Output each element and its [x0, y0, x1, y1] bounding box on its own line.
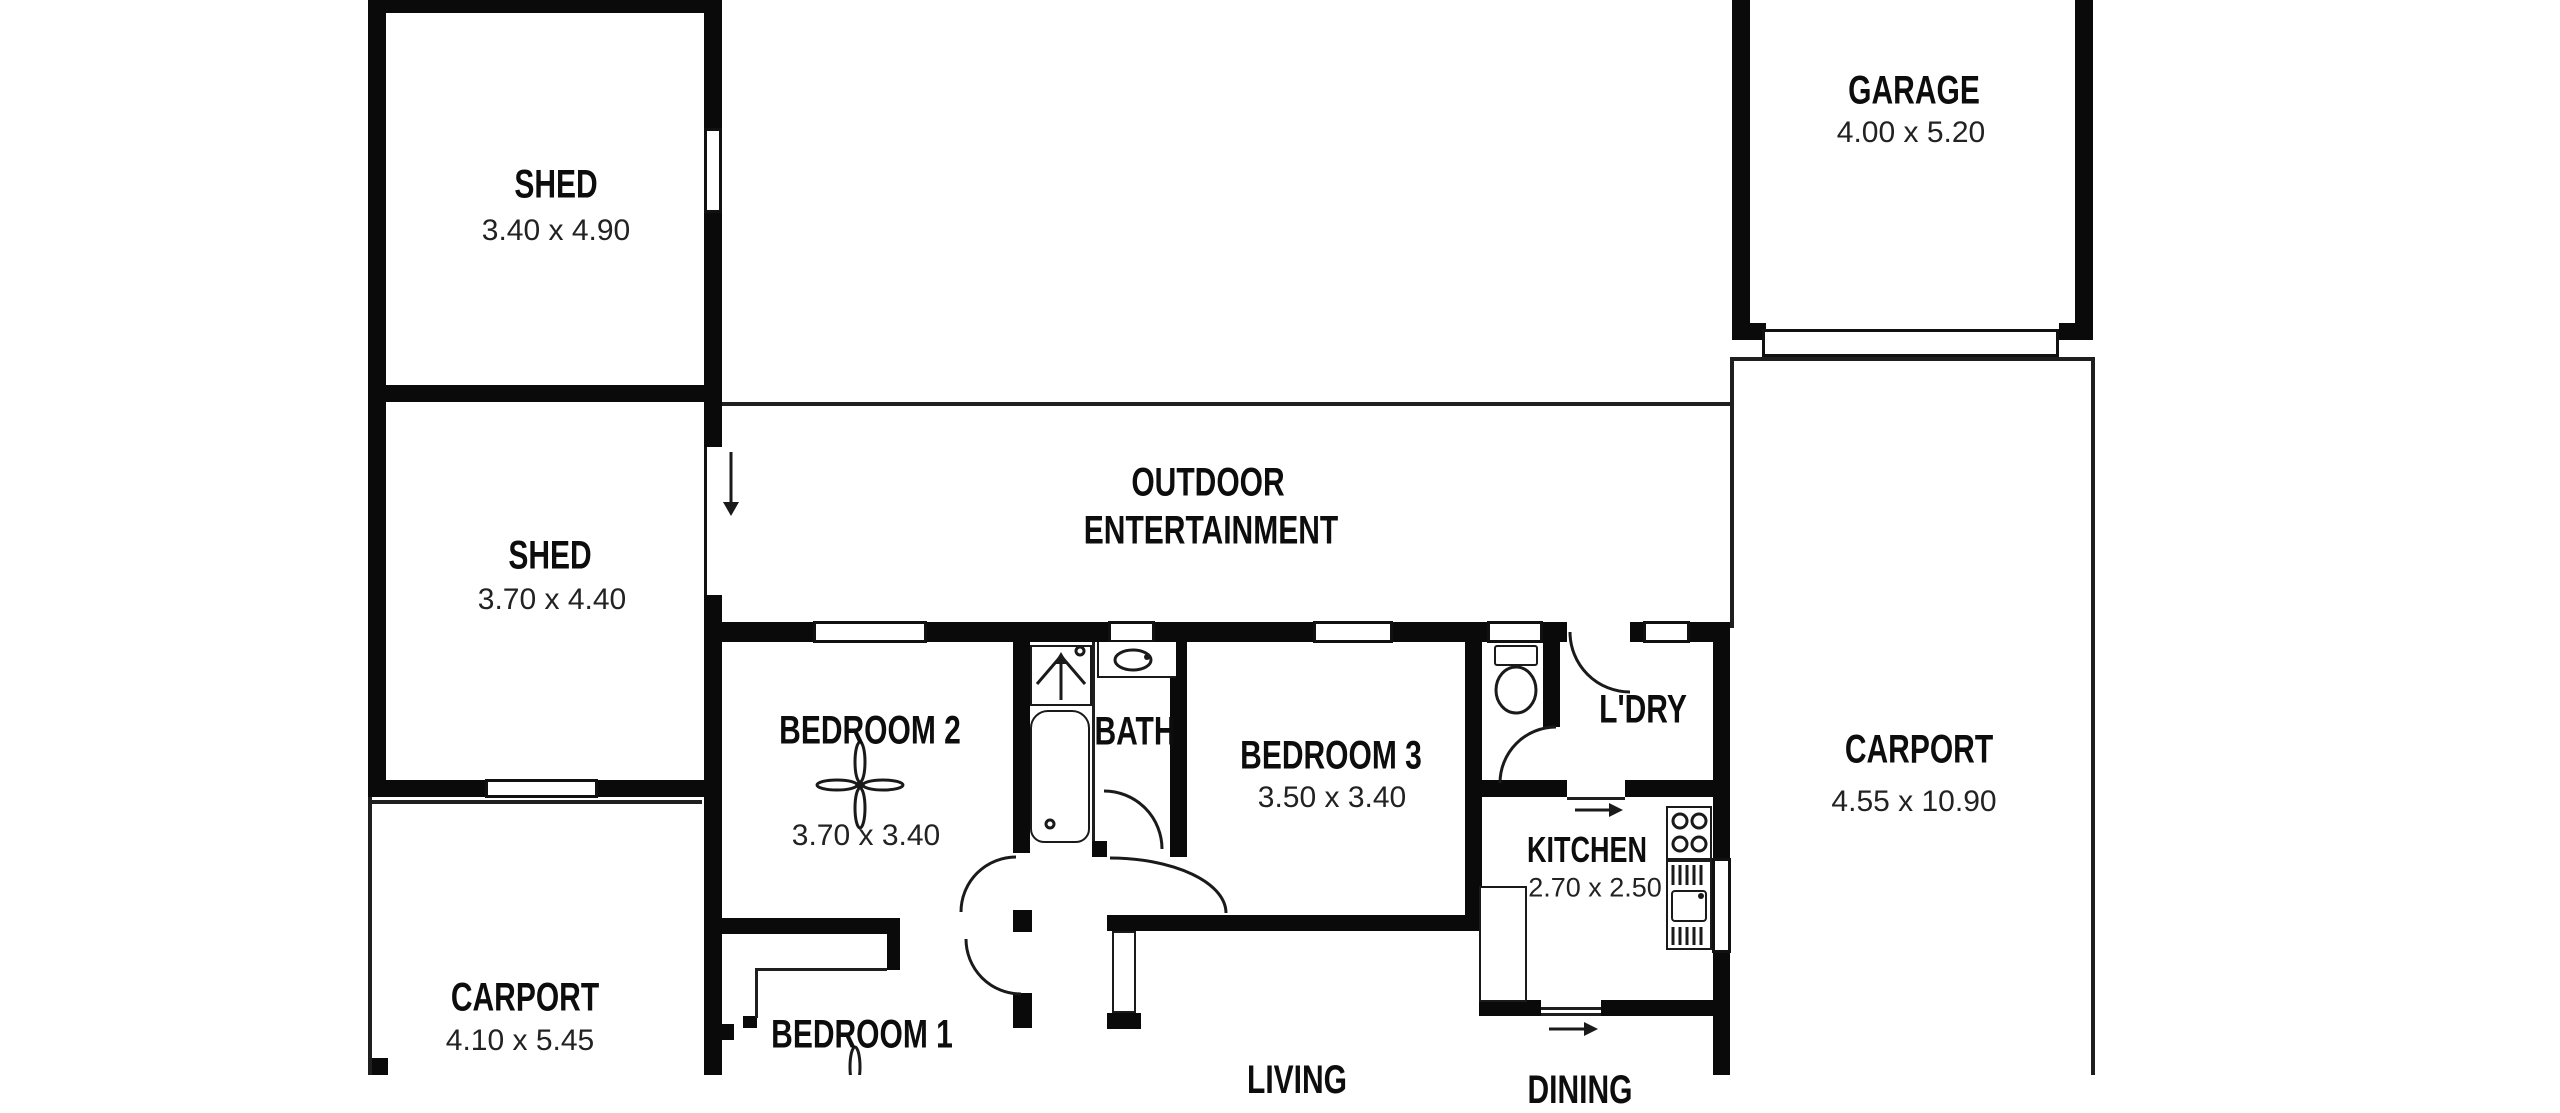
room-label-garage: GARAGE [1848, 69, 1980, 114]
room-label-living: LIVING [1247, 1058, 1347, 1103]
room-label-carport-right: CARPORT [1845, 728, 1993, 773]
room-label-kitchen: KITCHEN [1527, 829, 1647, 871]
door-swing-arc [961, 857, 1016, 912]
stove-icon [1692, 837, 1706, 851]
stove-icon [1673, 814, 1687, 828]
room-dims-carport-left: 4.10 x 5.45 [446, 1024, 594, 1058]
room-label-bath: BATH [1094, 710, 1175, 755]
room-dims-bedroom2: 3.70 x 3.40 [792, 819, 940, 853]
door-swing-arc [966, 939, 1021, 994]
room-dims-shed2: 3.70 x 4.40 [478, 583, 626, 617]
shower-icon [1054, 652, 1068, 664]
room-label-shed1: SHED [514, 163, 597, 208]
room-dims-shed1: 3.40 x 4.90 [482, 214, 630, 248]
bathtub-icon [1046, 820, 1054, 828]
stove-icon [1692, 814, 1706, 828]
entry-arrow-icon [723, 502, 739, 516]
door-swing-arc [1104, 791, 1162, 849]
room-label-shed2: SHED [508, 534, 591, 579]
floor-plan: { "rooms": { "shed1": {"name": "SHED", "… [0, 0, 2560, 1075]
room-label-bedroom1: BEDROOM 1 [771, 1013, 953, 1058]
room-label-laundry: L'DRY [1599, 688, 1687, 733]
room-label-outdoor-line2: ENTERTAINMENT [1084, 509, 1338, 554]
room-dims-kitchen: 2.70 x 2.50 [1528, 873, 1662, 904]
basin-icon [1115, 650, 1151, 670]
room-dims-garage: 4.00 x 5.20 [1837, 116, 1985, 150]
room-dims-carport-right: 4.55 x 10.90 [1831, 785, 1996, 819]
door-swing-arc [1570, 632, 1630, 692]
room-dims-bedroom3: 3.50 x 3.40 [1258, 781, 1406, 815]
room-label-bedroom2: BEDROOM 2 [779, 709, 961, 754]
door-swing-arc [1110, 858, 1226, 913]
room-label-bedroom3: BEDROOM 3 [1240, 734, 1422, 779]
entry-arrow-icon [1609, 803, 1623, 817]
ceiling-fan-icon [856, 781, 864, 789]
room-label-carport-left: CARPORT [451, 976, 599, 1021]
basin-icon [1144, 654, 1150, 660]
double-sink-icon [1673, 865, 1701, 945]
double-sink-icon [1698, 893, 1704, 899]
stove-icon [1673, 837, 1687, 851]
room-label-outdoor-line1: OUTDOOR [1131, 461, 1284, 506]
shower-icon [1076, 647, 1084, 655]
door-swing-arc [1500, 727, 1556, 783]
entry-arrow-icon [1584, 1022, 1598, 1036]
toilet-icon [1496, 667, 1536, 713]
